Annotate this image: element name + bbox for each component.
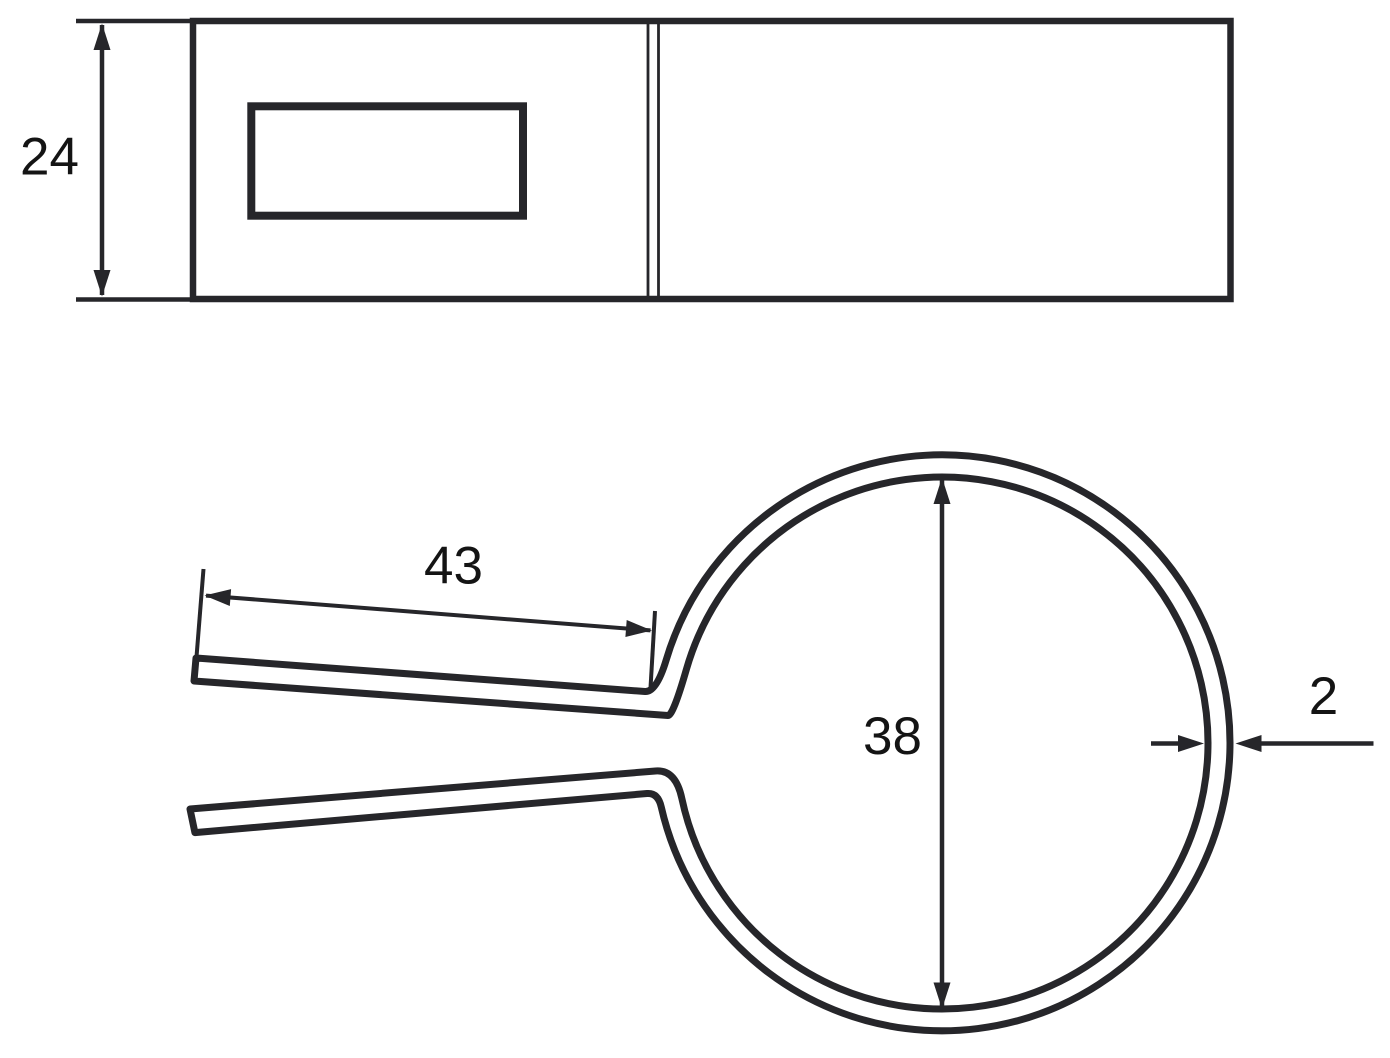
svg-text:2: 2 bbox=[1309, 667, 1338, 726]
svg-text:43: 43 bbox=[424, 537, 483, 596]
svg-text:38: 38 bbox=[863, 707, 922, 766]
svg-text:24: 24 bbox=[20, 128, 79, 187]
